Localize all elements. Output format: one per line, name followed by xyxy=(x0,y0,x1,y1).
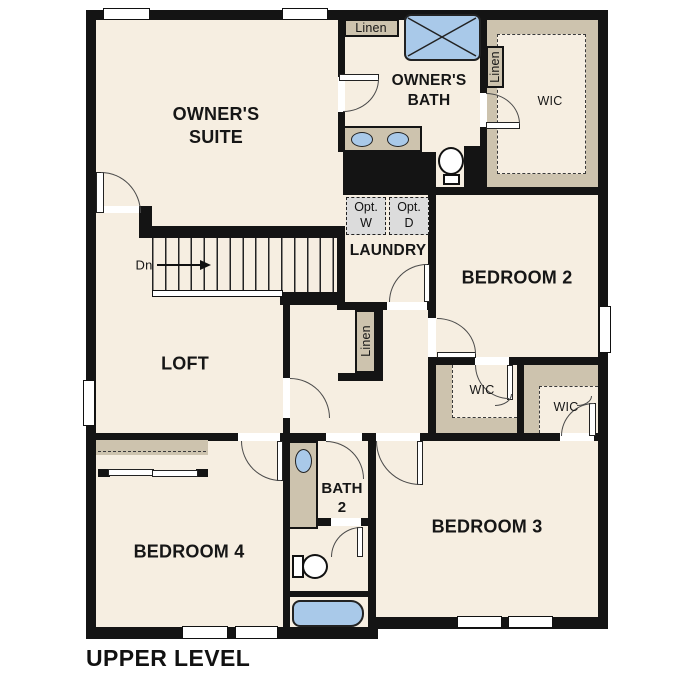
owners-toilet-bowl-icon xyxy=(438,147,464,175)
window-bedroom4-right xyxy=(235,626,278,639)
stairs-direction-label: Dn xyxy=(135,258,152,275)
label-loft: LOFT xyxy=(161,352,209,375)
label-wic-bedroom3: WIC xyxy=(554,399,579,415)
wall-bath2-bedroom3 xyxy=(368,441,376,627)
label-laundry: LAUNDRY xyxy=(350,241,427,261)
closet-bedroom4 xyxy=(96,440,208,455)
stairs-arrow-head xyxy=(200,260,211,270)
opening-bath2-door xyxy=(326,433,362,441)
shower-cross-lines xyxy=(406,16,478,58)
opening-bedroom3-door xyxy=(376,433,420,441)
owners-toilet-tank-icon xyxy=(443,174,460,185)
stairs-arrow-line xyxy=(157,264,201,266)
opening-bedroom4-door xyxy=(238,433,280,441)
closet-bedroom4-shelf-line xyxy=(98,451,206,452)
wall-linen-hall-bottom xyxy=(338,373,383,381)
wall-chase-block xyxy=(343,152,436,195)
bath2-toilet-bowl-icon xyxy=(302,554,328,579)
shower-icon xyxy=(404,14,481,61)
opening-laundry-door xyxy=(387,302,427,310)
label-wic-owners: WIC xyxy=(538,93,563,109)
optional-dryer-box: Opt. D xyxy=(389,197,429,235)
wall-bedroom2-bottom xyxy=(428,357,608,365)
bathtub-icon xyxy=(292,600,364,627)
label-bedroom2: BEDROOM 2 xyxy=(462,266,573,289)
wall-exterior-left xyxy=(86,10,96,639)
wall-suite-stub xyxy=(139,213,152,238)
window-suite-top-right xyxy=(282,8,328,20)
optional-washer-label: Opt. W xyxy=(354,200,378,231)
label-bedroom4: BEDROOM 4 xyxy=(134,540,245,563)
closet-bedroom4-bypass-door-left xyxy=(108,469,154,476)
label-owners-suite: OWNER'S SUITE xyxy=(173,103,260,149)
optional-dryer-label: Opt. D xyxy=(397,200,421,231)
window-suite-top-left xyxy=(103,8,150,20)
wall-stairs-top xyxy=(152,226,345,238)
opening-bath2-inner-door xyxy=(331,518,361,526)
window-loft-left xyxy=(83,380,95,426)
label-owners-bath: OWNER'S BATH xyxy=(392,71,467,111)
owners-sink-right-icon xyxy=(387,132,409,147)
window-bedroom3-right xyxy=(508,616,553,628)
wall-linen-hall-right xyxy=(375,302,383,380)
wall-wic-divider xyxy=(517,365,524,441)
label-bath2: BATH 2 xyxy=(321,479,362,517)
window-bedroom4-left xyxy=(182,626,228,639)
label-bedroom3: BEDROOM 3 xyxy=(432,515,543,538)
label-linen-top: Linen xyxy=(355,20,387,36)
wall-exterior-bottom-left xyxy=(86,627,378,639)
floor-plan: Opt. W Opt. D Dn xyxy=(0,0,687,687)
bath2-sink-icon xyxy=(295,449,312,473)
label-linen-bath: Linen xyxy=(487,51,503,83)
wall-bedroom2-top xyxy=(436,187,608,195)
plan-title: UPPER LEVEL xyxy=(86,645,250,672)
stairs-rail xyxy=(152,290,283,297)
opening-loft-hall-door xyxy=(283,378,290,418)
wall-wic-bedroom2-left xyxy=(428,357,436,441)
label-linen-hall: Linen xyxy=(358,325,374,357)
optional-washer-box: Opt. W xyxy=(346,197,386,235)
opening-wic-bedroom2-door xyxy=(475,357,509,365)
closet-bedroom4-bypass-door-right xyxy=(152,470,198,477)
window-bedroom2-right xyxy=(599,306,611,353)
opening-bedroom2-door xyxy=(428,318,436,357)
owners-sink-left-icon xyxy=(351,132,373,147)
window-bedroom3-left xyxy=(457,616,502,628)
wall-tub-edge xyxy=(290,591,368,597)
label-wic-bedroom2: WIC xyxy=(470,382,495,398)
